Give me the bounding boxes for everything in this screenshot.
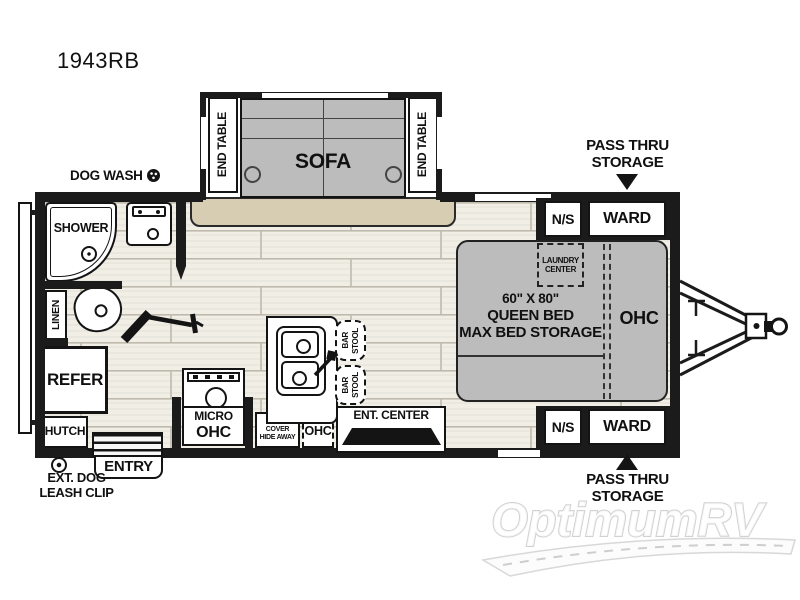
sofa-center-line (323, 100, 324, 196)
shower-label: SHOWER (47, 221, 115, 235)
micro-ohc-label: OHC (196, 424, 231, 442)
linen-label: LINEN (50, 300, 62, 330)
bar-stool-2: BAR STOOL (335, 365, 366, 405)
range-control-strip (187, 372, 240, 382)
slide-window-top (262, 93, 388, 98)
sink-drain-icon (292, 371, 307, 386)
page-title: 1943RB (57, 48, 140, 74)
dog-wash-faucet (132, 206, 166, 217)
rear-bumper-tick-bottom (31, 420, 37, 425)
linen-cabinet: LINEN (45, 290, 67, 340)
slide-window-left (201, 117, 206, 169)
sofa-cupholder-right-icon (385, 166, 402, 183)
sink-basin-top (281, 331, 319, 358)
watermark-road-icon (483, 538, 795, 576)
dog-wash-text: DOG WASH (70, 168, 143, 184)
refrigerator: REFER (42, 346, 108, 414)
bed-storage: MAX BED STORAGE (458, 324, 603, 341)
dog-wash-label: DOG WASH (70, 168, 160, 184)
dog-wash-icon (147, 169, 160, 182)
wall-bath-right (176, 202, 186, 266)
dog-wash-drain-icon (147, 228, 159, 240)
hutch-label: HUTCH (45, 425, 86, 439)
rear-bumper (18, 202, 32, 434)
rear-bumper-tick-top (31, 210, 37, 215)
carpet-strip (190, 197, 456, 227)
end-table-right: END TABLE (408, 97, 438, 193)
bed-ohc-divider (603, 244, 611, 399)
wardrobe-bottom: WARD (588, 409, 666, 445)
laundry-center: LAUNDRY CENTER (537, 243, 584, 287)
counter-divider-right (245, 397, 253, 450)
end-table-left: END TABLE (208, 97, 238, 193)
pass-thru-arrow-bottom-icon (616, 454, 638, 470)
refer-label: REFER (47, 370, 103, 390)
ns-bottom-label: N/S (552, 419, 574, 435)
bar-stool-word: BAR (341, 377, 350, 393)
burner-knob-icon (205, 375, 210, 379)
pass-thru-arrow-top-icon (616, 174, 638, 190)
pass-thru-bottom-label: PASS THRU STORAGE (570, 471, 685, 506)
bar-stool-1: BAR STOOL (335, 320, 366, 361)
ward-top-label: WARD (603, 210, 651, 228)
bar-stool-word: BAR (341, 332, 350, 348)
sink-drain-icon (296, 339, 311, 354)
bed-size: 60" X 80" (458, 291, 603, 307)
kitchen-ohc-label: OHC (305, 424, 332, 438)
sofa-label: SOFA (295, 150, 351, 174)
bed-type: QUEEN BED (458, 307, 603, 324)
pass-thru-top-label: PASS THRU STORAGE (570, 137, 685, 172)
rv-floorplan: 1943RB END TA (0, 0, 800, 600)
pass-thru-top-line1: PASS THRU (570, 137, 685, 154)
bed-ohc-label: OHC (612, 308, 666, 329)
shower-drain-icon (81, 246, 97, 262)
pass-thru-top-line2: STORAGE (570, 154, 685, 171)
leash-line1: EXT. DOG (14, 471, 139, 486)
sink-cover-line3: HIDE AWAY (260, 434, 296, 442)
hitch-coupler-icon (746, 314, 787, 338)
faucet-knob-icon (156, 210, 160, 214)
kitchen-island (266, 316, 338, 424)
wall-left (35, 192, 45, 458)
ent-center-label: ENT. CENTER (353, 409, 428, 423)
ns-top-label: N/S (552, 211, 574, 227)
bar-stool-word: STOOL (351, 328, 360, 354)
bed-foot-line (458, 355, 603, 357)
watermark-road-dashes-icon (503, 545, 789, 565)
micro-label: MICRO (194, 410, 233, 424)
wall-bath-mid (35, 281, 122, 289)
wall-linen-refer (35, 338, 68, 346)
faucet-knob-icon (138, 210, 142, 214)
wall-right (670, 192, 680, 458)
micro-ohc-cabinet: MICRO OHC (182, 406, 245, 446)
entertainment-center: ENT. CENTER (336, 406, 446, 453)
laundry-line2: CENTER (545, 265, 576, 274)
burner-knob-icon (229, 375, 234, 379)
sofa-cupholder-left-icon (244, 166, 261, 183)
burner-knob-icon (193, 375, 198, 379)
dog-wash-sink (126, 202, 172, 246)
sofa: SOFA (240, 98, 406, 198)
pass-thru-bottom-line1: PASS THRU (570, 471, 685, 488)
sink-basin-bottom (281, 361, 319, 389)
end-table-left-label: END TABLE (216, 112, 230, 177)
leash-clip-label: EXT. DOG LEASH CLIP (14, 471, 139, 501)
bar-stool-word: STOOL (351, 372, 360, 398)
burner-knob-icon (217, 375, 222, 379)
hutch: HUTCH (42, 416, 88, 448)
toilet-drain-icon (93, 303, 109, 319)
nightstand-bottom: N/S (544, 409, 582, 445)
double-sink (276, 326, 326, 396)
wardrobe-top: WARD (588, 201, 666, 237)
bed-label: 60" X 80" QUEEN BED MAX BED STORAGE (458, 291, 603, 341)
hitch-frame-icon (680, 281, 757, 375)
slide-window-right (437, 117, 442, 169)
laundry-line1: LAUNDRY (542, 256, 579, 265)
leash-line2: LEASH CLIP (14, 486, 139, 501)
entry-steps (92, 432, 163, 457)
cabinet-strip-bottom: N/S WARD (536, 406, 670, 448)
wall-top-left (35, 192, 203, 202)
watermark: OptimumRV (455, 494, 800, 589)
cabinet-strip-top: N/S WARD (536, 198, 670, 240)
window-bottom-bedroom (498, 450, 540, 457)
pass-thru-bottom-line2: STORAGE (570, 488, 685, 505)
sink-cover-line2: COVER (266, 426, 289, 434)
counter-divider-left (172, 397, 181, 450)
range-cooktop (182, 368, 245, 408)
ward-bottom-label: WARD (603, 418, 651, 436)
nightstand-top: N/S (544, 201, 582, 237)
end-table-right-label: END TABLE (416, 112, 430, 177)
